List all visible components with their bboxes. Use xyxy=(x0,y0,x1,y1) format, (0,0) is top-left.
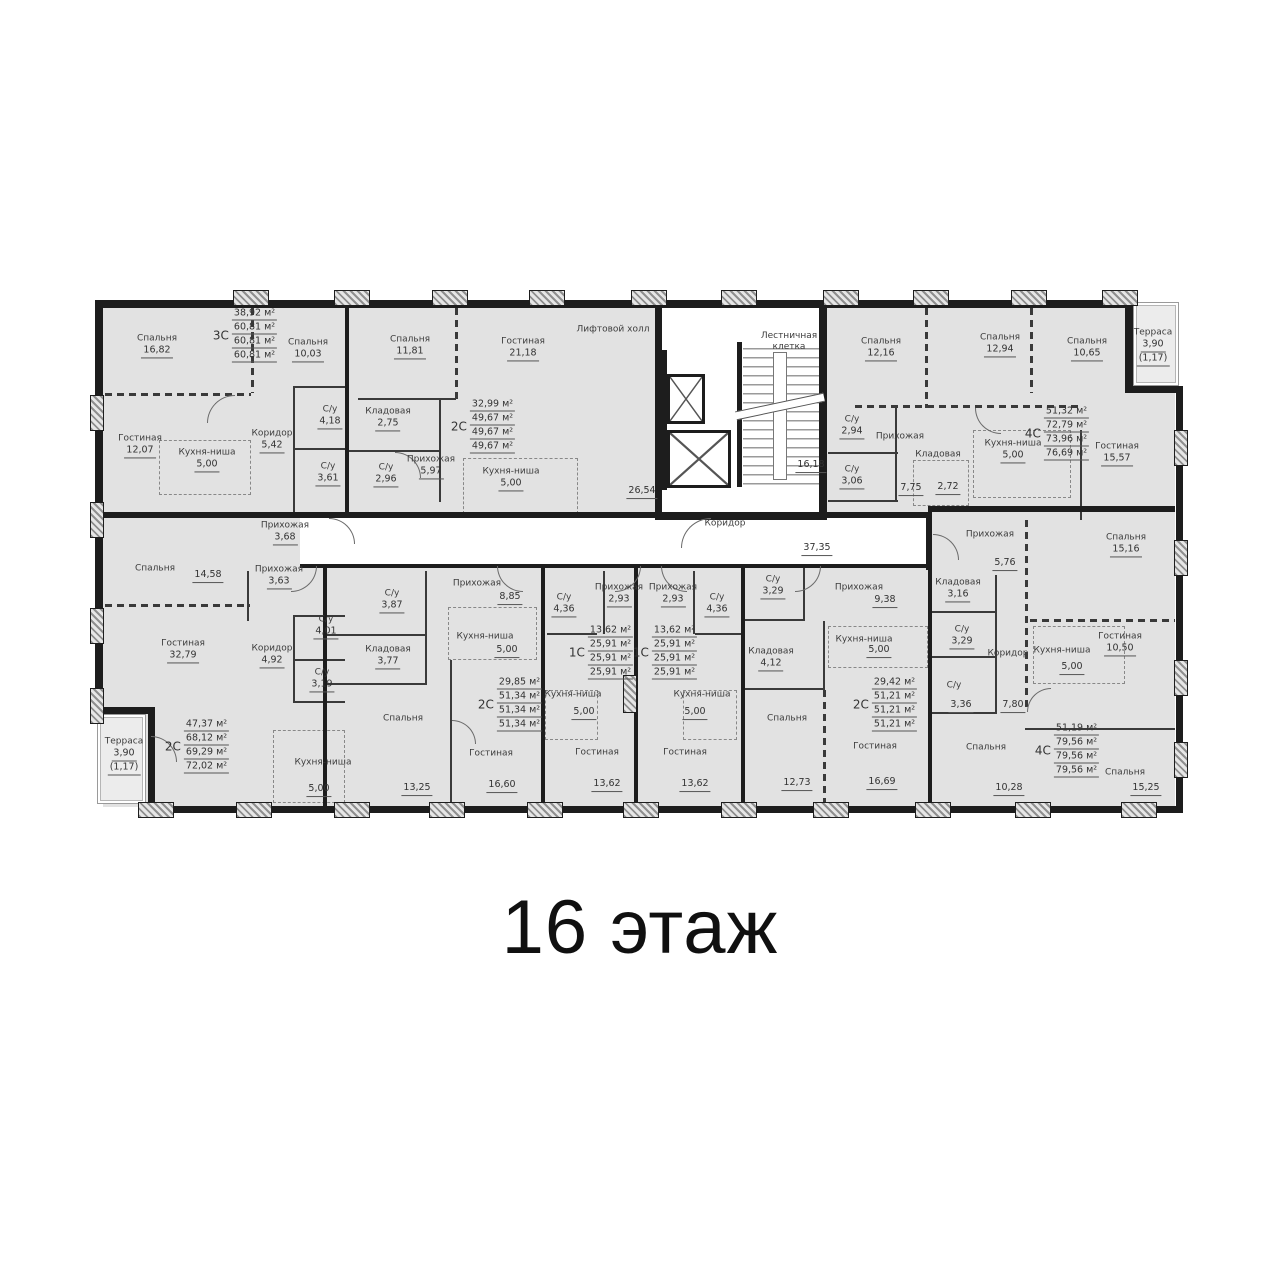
area-value: 49,67 м² xyxy=(470,427,515,440)
room-name: С/у xyxy=(947,680,962,691)
room-label: Спальня10,03 xyxy=(288,337,328,362)
area-value: 79,56 м² xyxy=(1054,765,1099,778)
room-name: Прихожая xyxy=(595,582,643,593)
area-value: 3,16 xyxy=(945,589,970,603)
wall xyxy=(1125,300,1133,393)
room-area: 5,00 xyxy=(571,706,596,720)
room-label: Кладовая xyxy=(915,449,961,460)
area-value: 13,62 xyxy=(591,778,622,792)
common-area xyxy=(300,518,930,564)
room-label: Прихожая2,93 xyxy=(649,582,697,607)
room-label: Прихожая5,97 xyxy=(407,454,455,479)
interior-wall xyxy=(293,701,345,703)
partition-dashed xyxy=(1030,619,1175,622)
room-name: Кухня-ниша xyxy=(178,447,235,458)
area-value: 47,37 м² xyxy=(184,719,229,732)
interior-wall xyxy=(695,633,743,635)
floor-plan: Спальня16,82Спальня10,03Гостиная12,07Кух… xyxy=(95,290,1183,823)
room-name: Спальня xyxy=(966,742,1006,753)
floor-caption: 16 этаж xyxy=(0,884,1280,971)
wall xyxy=(95,707,155,714)
area-value: 3,77 xyxy=(375,656,400,670)
apartment-areas: 13,62 м²25,91 м²25,91 м²25,91 м² xyxy=(652,625,697,680)
area-value: 10,28 xyxy=(993,782,1024,796)
pilaster xyxy=(236,802,272,818)
apartment-type: 2С xyxy=(165,739,181,753)
area-value: 3,19 xyxy=(309,679,334,693)
room-area: 2,72 xyxy=(935,481,960,495)
area-value: 76,69 м² xyxy=(1044,448,1089,461)
room-area: 3,36 xyxy=(948,699,973,713)
partition-dashed xyxy=(1025,520,1028,712)
pilaster xyxy=(334,802,370,818)
room-name: Прихожая xyxy=(407,454,455,465)
area-value: 73,96 м² xyxy=(1044,434,1089,447)
area-value: 4,36 xyxy=(551,604,576,618)
apartment-type: 2С xyxy=(478,697,494,711)
room-label: Гостиная32,79 xyxy=(161,638,205,663)
room-name: С/у xyxy=(839,414,864,425)
area-value: 15,57 xyxy=(1101,453,1132,467)
room-name: С/у xyxy=(373,462,398,473)
interior-wall xyxy=(293,448,347,450)
pilaster xyxy=(432,290,468,306)
pilaster xyxy=(623,802,659,818)
room-name: Прихожая xyxy=(255,564,303,575)
apartment-type: 2С xyxy=(853,697,869,711)
room-label: Прихожая xyxy=(453,578,501,589)
room-name: Кладовая xyxy=(365,644,411,655)
area-value: 5,00 xyxy=(494,644,519,658)
room-label: Спальня xyxy=(383,713,423,724)
apartment-areas: 38,92 м²60,81 м²60,81 м²60,81 м² xyxy=(232,308,277,363)
core-area: 37,35 xyxy=(801,542,832,556)
room-area: 16,69 xyxy=(866,776,897,790)
interior-wall xyxy=(823,621,825,689)
area-value: 5,00 xyxy=(682,706,707,720)
area-value: 4,01 xyxy=(313,626,338,640)
area-value: 16,69 xyxy=(866,776,897,790)
apartment-summary: 2С29,85 м²51,34 м²51,34 м²51,34 м² xyxy=(478,677,542,732)
area-value: 32,99 м² xyxy=(470,399,515,412)
room-area: 12,73 xyxy=(781,777,812,791)
room-label: С/у4,36 xyxy=(704,592,729,617)
pilaster xyxy=(913,290,949,306)
apartment-areas: 29,42 м²51,21 м²51,21 м²51,21 м² xyxy=(872,677,917,732)
room-name: Прихожая xyxy=(835,582,883,593)
pilaster xyxy=(631,290,667,306)
room-label: Спальня xyxy=(767,713,807,724)
room-name: Спальня xyxy=(861,336,901,347)
apartment-type: 3С xyxy=(213,328,229,342)
area-value: 60,81 м² xyxy=(232,336,277,349)
pilaster xyxy=(1102,290,1138,306)
room-name: С/у xyxy=(839,464,864,475)
pilaster xyxy=(90,688,104,724)
room-name: С/у xyxy=(313,614,338,625)
area-value: 51,34 м² xyxy=(497,705,542,718)
area-value: 7,80 xyxy=(1000,699,1025,713)
interior-wall xyxy=(358,398,456,400)
apartment-summary: 1С13,62 м²25,91 м²25,91 м²25,91 м² xyxy=(633,625,697,680)
pilaster xyxy=(90,395,104,431)
area-value: 25,91 м² xyxy=(588,653,633,666)
room-name: Коридор xyxy=(252,428,293,439)
apartment-areas: 13,62 м²25,91 м²25,91 м²25,91 м² xyxy=(588,625,633,680)
area-value: 21,18 xyxy=(507,348,538,362)
interior-wall xyxy=(425,636,427,684)
room-label: Кладовая3,77 xyxy=(365,644,411,669)
area-value: 29,85 м² xyxy=(497,677,542,690)
apartment-type: 1С xyxy=(569,645,585,659)
area-value: 79,56 м² xyxy=(1054,751,1099,764)
room-name: Прихожая xyxy=(649,582,697,593)
pilaster xyxy=(623,675,637,713)
room-label: С/у4,36 xyxy=(551,592,576,617)
pilaster xyxy=(90,502,104,538)
pilaster xyxy=(721,290,757,306)
area-value: 9,38 xyxy=(872,594,897,608)
partition-dashed xyxy=(823,690,826,808)
area-value: 49,67 м² xyxy=(470,441,515,454)
core-area: 26,54 xyxy=(626,485,657,499)
area-value: 16,60 xyxy=(486,779,517,793)
interior-wall xyxy=(425,571,427,635)
area-value: 12,73 xyxy=(781,777,812,791)
room-name: Спальня xyxy=(767,713,807,724)
wall xyxy=(926,512,932,570)
area-value: 13,25 xyxy=(401,782,432,796)
room-label: С/у4,18 xyxy=(317,404,342,429)
room-name: Кухня-ниша xyxy=(673,689,730,700)
interior-wall xyxy=(293,386,295,516)
apartment-areas: 51,32 м²72,79 м²73,96 м²76,69 м² xyxy=(1044,406,1089,461)
interior-wall xyxy=(439,398,441,502)
area-value: 5,00 xyxy=(1000,450,1025,464)
area-value: 25,91 м² xyxy=(588,639,633,652)
area-value: 13,62 м² xyxy=(588,625,633,638)
area-value: 25,91 м² xyxy=(652,667,697,680)
pilaster xyxy=(813,802,849,818)
area-value: 3,63 xyxy=(266,576,291,590)
room-label: Спальня12,16 xyxy=(861,336,901,361)
pilaster xyxy=(721,802,757,818)
room-name: Спальня xyxy=(980,332,1020,343)
area-value: 3,36 xyxy=(948,699,973,713)
area-value: 3,06 xyxy=(839,476,864,490)
core-label: Лифтовой холл xyxy=(577,324,650,335)
room-name: С/у xyxy=(315,461,340,472)
area-value: 3,61 xyxy=(315,473,340,487)
area-value: 5,00 xyxy=(194,459,219,473)
room-area: 9,38 xyxy=(872,594,897,608)
apartment-type: 4С xyxy=(1035,743,1051,757)
area-value: 8,85 xyxy=(497,591,522,605)
area-value: 5,00 xyxy=(866,644,891,658)
room-name: С/у xyxy=(551,592,576,603)
area-value: 4,92 xyxy=(259,655,284,669)
room-label: Гостиная15,57 xyxy=(1095,441,1139,466)
room-area: 5,00 xyxy=(306,783,331,797)
area-value: 38,92 м² xyxy=(232,308,277,321)
area-value: 5,97 xyxy=(418,466,443,480)
area-value: 2,75 xyxy=(375,418,400,432)
area-value: 51,21 м² xyxy=(872,719,917,732)
area-value: 15,16 xyxy=(1110,544,1141,558)
room-label: Терраса3,90(1,17) xyxy=(1134,328,1172,367)
apartment-type: 2С xyxy=(451,419,467,433)
room-label: Спальня10,65 xyxy=(1067,336,1107,361)
room-name: Терраса xyxy=(1134,328,1172,339)
interior-wall xyxy=(745,688,825,690)
room-name: Кухня-ниша xyxy=(294,757,351,768)
room-label: Прихожая xyxy=(966,529,1014,540)
room-label: Прихожая xyxy=(835,582,883,593)
room-area: 5,76 xyxy=(992,557,1017,571)
room-name: Спальня xyxy=(135,563,175,574)
room-name: Коридор xyxy=(988,648,1029,659)
pilaster xyxy=(334,290,370,306)
room-name: Прихожая xyxy=(966,529,1014,540)
area-value: 3,29 xyxy=(949,636,974,650)
room-area: 7,75 xyxy=(898,482,923,496)
room-name: Гостиная xyxy=(1095,441,1139,452)
interior-wall xyxy=(828,452,898,454)
room-name: Прихожая xyxy=(453,578,501,589)
room-label: Спальня16,82 xyxy=(137,333,177,358)
room-label: С/у3,29 xyxy=(949,624,974,649)
partition-dashed xyxy=(925,308,928,408)
area-value: 15,25 xyxy=(1130,782,1161,796)
room-label: С/у3,06 xyxy=(839,464,864,489)
room-label: Прихожая3,63 xyxy=(255,564,303,589)
room-area: 14,58 xyxy=(192,569,223,583)
area-value: 16,82 xyxy=(141,345,172,359)
room-label: Гостиная xyxy=(575,747,619,758)
room-name: Гостиная xyxy=(1098,631,1142,642)
room-name: Кладовая xyxy=(915,449,961,460)
room-area: 8,85 xyxy=(497,591,522,605)
apartment-summary: 2С32,99 м²49,67 м²49,67 м²49,67 м² xyxy=(451,399,515,454)
wall xyxy=(660,350,667,490)
area-value: 10,65 xyxy=(1071,348,1102,362)
area-value: 11,81 xyxy=(394,346,425,360)
room-name: Кладовая xyxy=(748,646,794,657)
room-name: Спальня xyxy=(390,334,430,345)
room-name: Гостиная xyxy=(501,336,545,347)
room-label: Кладовая3,16 xyxy=(935,577,981,602)
room-name: Гостиная xyxy=(118,433,162,444)
room-label: Кухня-ниша xyxy=(835,634,892,645)
room-area: 15,25 xyxy=(1130,782,1161,796)
partition-dashed xyxy=(105,604,250,607)
area-value: 7,75 xyxy=(898,482,923,496)
room-area: 13,25 xyxy=(401,782,432,796)
room-label: Кухня-ниша xyxy=(294,757,351,768)
area-value: 29,42 м² xyxy=(872,677,917,690)
apartment-areas: 51,19 м²79,56 м²79,56 м²79,56 м² xyxy=(1054,723,1099,778)
area-value: 3,90 xyxy=(1140,339,1165,353)
area-value: 10,03 xyxy=(292,349,323,363)
area-value: 5,00 xyxy=(306,783,331,797)
wall xyxy=(928,506,1175,512)
area-value: 32,79 xyxy=(167,650,198,664)
room-label: Гостиная xyxy=(663,747,707,758)
room-name: С/у xyxy=(317,404,342,415)
room-area: 5,00 xyxy=(494,644,519,658)
area-value: 26,54 xyxy=(626,485,657,499)
core-area: 16,18 xyxy=(795,459,826,473)
area-value: 51,32 м² xyxy=(1044,406,1089,419)
area-value: 25,91 м² xyxy=(588,667,633,680)
apartment-summary: 2С47,37 м²68,12 м²69,29 м²72,02 м² xyxy=(165,719,229,774)
area-value: 5,00 xyxy=(1059,661,1084,675)
room-area: 10,28 xyxy=(993,782,1024,796)
room-label: Гостиная21,18 xyxy=(501,336,545,361)
room-area: 13,62 xyxy=(679,778,710,792)
area-value: 13,62 м² xyxy=(652,625,697,638)
room-name: Спальня xyxy=(383,713,423,724)
area-value: 2,93 xyxy=(660,594,685,608)
room-name: Гостиная xyxy=(575,747,619,758)
room-label: Прихожая3,68 xyxy=(261,520,309,545)
room-area: 5,00 xyxy=(866,644,891,658)
room-label: Прихожая2,93 xyxy=(595,582,643,607)
room-name: Спальня xyxy=(1105,767,1145,778)
area-value: 2,93 xyxy=(606,594,631,608)
room-name: С/у xyxy=(704,592,729,603)
room-area: 13,62 xyxy=(591,778,622,792)
pilaster xyxy=(233,290,269,306)
apartment-type: 4С xyxy=(1025,426,1041,440)
room-label: Гостиная xyxy=(853,741,897,752)
pilaster xyxy=(1174,540,1188,576)
interior-wall xyxy=(895,405,897,500)
core-label: Коридор xyxy=(705,518,746,529)
room-area: 5,00 xyxy=(682,706,707,720)
room-label: Прихожая xyxy=(876,431,924,442)
area-value: 10,50 xyxy=(1104,643,1135,657)
room-label: С/у4,01 xyxy=(313,614,338,639)
room-name: Спальня xyxy=(137,333,177,344)
area-value: 12,07 xyxy=(124,445,155,459)
area-value: 49,67 м² xyxy=(470,413,515,426)
room-label: С/у xyxy=(947,680,962,691)
room-name: Спальня xyxy=(288,337,328,348)
interior-wall xyxy=(932,611,997,613)
room-name: Гостиная xyxy=(853,741,897,752)
pilaster xyxy=(1011,290,1047,306)
area-value: 51,19 м² xyxy=(1054,723,1099,736)
interior-wall xyxy=(828,500,898,502)
elevator-shaft xyxy=(667,430,731,488)
apartment-summary: 4С51,32 м²72,79 м²73,96 м²76,69 м² xyxy=(1025,406,1089,461)
apartment-areas: 47,37 м²68,12 м²69,29 м²72,02 м² xyxy=(184,719,229,774)
room-name: Кладовая xyxy=(935,577,981,588)
area-value: 25,91 м² xyxy=(652,639,697,652)
pilaster xyxy=(1015,802,1051,818)
apartment-summary: 1С13,62 м²25,91 м²25,91 м²25,91 м² xyxy=(569,625,633,680)
area-value: 51,21 м² xyxy=(872,691,917,704)
room-name: Кладовая xyxy=(365,406,411,417)
area-value: 16,18 xyxy=(795,459,826,473)
room-label: Спальня12,94 xyxy=(980,332,1020,357)
apartment-summary: 3С38,92 м²60,81 м²60,81 м²60,81 м² xyxy=(213,308,277,363)
room-name: С/у xyxy=(309,667,334,678)
wall xyxy=(928,568,932,808)
area-value: 4,18 xyxy=(317,416,342,430)
room-name: Гостиная xyxy=(161,638,205,649)
room-label: Кладовая4,12 xyxy=(748,646,794,671)
wall xyxy=(1125,386,1183,393)
area-value: 72,02 м² xyxy=(184,761,229,774)
apartment-summary: 4С51,19 м²79,56 м²79,56 м²79,56 м² xyxy=(1035,723,1099,778)
interior-wall xyxy=(745,619,805,621)
elevator-shaft xyxy=(667,374,705,424)
pilaster xyxy=(529,290,565,306)
area-value: 51,21 м² xyxy=(872,705,917,718)
room-label: Кухня-ниша xyxy=(1033,645,1090,656)
area-value: 2,94 xyxy=(839,426,864,440)
area-value: 5,76 xyxy=(992,557,1017,571)
area-value: 12,16 xyxy=(865,348,896,362)
pilaster xyxy=(1121,802,1157,818)
area-value: 3,87 xyxy=(379,600,404,614)
pilaster xyxy=(138,802,174,818)
apartment-areas: 32,99 м²49,67 м²49,67 м²49,67 м² xyxy=(470,399,515,454)
room-label: С/у2,94 xyxy=(839,414,864,439)
room-label: Коридор xyxy=(988,648,1029,659)
interior-wall xyxy=(347,450,439,452)
room-area: 16,60 xyxy=(486,779,517,793)
room-label: Спальня xyxy=(135,563,175,574)
room-label: Коридор4,92 xyxy=(252,643,293,668)
partition-dashed xyxy=(1030,308,1033,393)
interior-wall xyxy=(247,571,249,621)
core-label: Лестничная клетка xyxy=(748,331,830,354)
room-name: Кухня-ниша xyxy=(835,634,892,645)
interior-wall xyxy=(293,659,345,661)
area-value: 2,72 xyxy=(935,481,960,495)
room-area: 5,00 xyxy=(1059,661,1084,675)
room-name: Коридор xyxy=(252,643,293,654)
room-area: 7,80 xyxy=(1000,699,1025,713)
room-label: Спальня15,16 xyxy=(1106,532,1146,557)
area-value: (1,17) xyxy=(108,762,141,776)
room-label: С/у3,19 xyxy=(309,667,334,692)
area-value: (1,17) xyxy=(1137,353,1170,367)
pilaster xyxy=(915,802,951,818)
room-name: Гостиная xyxy=(663,747,707,758)
room-label: Спальня xyxy=(966,742,1006,753)
area-value: 4,12 xyxy=(758,658,783,672)
area-value: 60,81 м² xyxy=(232,322,277,335)
area-value: 3,29 xyxy=(760,586,785,600)
room-name: Кухня-ниша xyxy=(1033,645,1090,656)
room-name: Кухня-ниша xyxy=(544,689,601,700)
area-value: 14,58 xyxy=(192,569,223,583)
room-label: Коридор5,42 xyxy=(252,428,293,453)
area-value: 3,68 xyxy=(272,532,297,546)
interior-wall xyxy=(995,575,997,613)
room-label: Кладовая2,75 xyxy=(365,406,411,431)
area-value: 12,94 xyxy=(984,344,1015,358)
pilaster xyxy=(823,290,859,306)
area-value: 72,79 м² xyxy=(1044,420,1089,433)
area-value: 4,36 xyxy=(704,604,729,618)
room-name: Кухня-ниша xyxy=(482,466,539,477)
room-label: Кухня-ниша xyxy=(673,689,730,700)
